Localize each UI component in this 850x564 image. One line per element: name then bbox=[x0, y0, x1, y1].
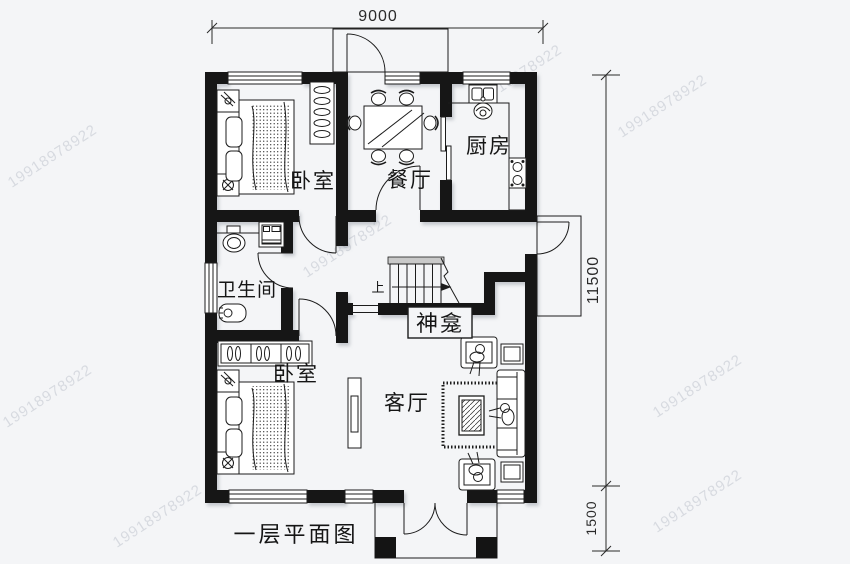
dining-chair bbox=[399, 91, 414, 106]
dining-table bbox=[364, 106, 424, 149]
window bbox=[228, 72, 302, 84]
window bbox=[497, 490, 524, 503]
interior-wall bbox=[495, 272, 537, 282]
bedroom-bottom-furniture bbox=[217, 341, 312, 474]
watermark-text: 19918978922 bbox=[650, 351, 745, 421]
interior-wall bbox=[205, 210, 299, 222]
living-label: 客厅 bbox=[384, 392, 430, 415]
interior-wall bbox=[336, 84, 348, 246]
washing-machine bbox=[259, 222, 284, 247]
door-bedroom-bottom bbox=[299, 299, 336, 336]
tv-cabinet bbox=[348, 378, 361, 448]
interior-wall bbox=[440, 84, 452, 117]
watermark-text: 19918978922 bbox=[615, 71, 710, 141]
kitchen-sink bbox=[469, 85, 497, 103]
bathroom-label: 卫生间 bbox=[217, 279, 277, 301]
porch-column bbox=[375, 537, 396, 558]
exterior-wall bbox=[420, 72, 463, 84]
exterior-wall bbox=[205, 72, 217, 263]
door-side-entry bbox=[537, 222, 569, 254]
wardrobe bbox=[310, 82, 334, 144]
interior-wall bbox=[420, 210, 537, 222]
interior-wall bbox=[336, 303, 353, 315]
window bbox=[205, 263, 217, 313]
stair-landing-edge bbox=[388, 257, 444, 264]
drawing-title: 一层平面图 bbox=[233, 522, 358, 547]
porch-column bbox=[476, 537, 497, 558]
nightstand-lamp bbox=[217, 90, 239, 112]
stairs bbox=[388, 257, 459, 303]
stove bbox=[509, 158, 526, 188]
interior-wall bbox=[440, 180, 452, 222]
interior-wall bbox=[348, 210, 376, 222]
floor-plan-drawing: 19918978922 19918978922 19918978922 1991… bbox=[0, 0, 850, 564]
watermark-text: 19918978922 bbox=[650, 466, 745, 536]
interior-wall bbox=[336, 292, 348, 343]
floor-plan-page: 19918978922 19918978922 19918978922 1991… bbox=[0, 0, 850, 564]
dining-chair bbox=[424, 116, 438, 130]
exterior-wall bbox=[525, 254, 537, 503]
dining-chair bbox=[371, 150, 386, 165]
window bbox=[463, 72, 510, 84]
interior-wall bbox=[484, 272, 495, 315]
armchair bbox=[459, 452, 495, 490]
bathroom-furniture bbox=[217, 222, 284, 322]
shrine-label: 神龛 bbox=[416, 311, 464, 336]
dining-chair bbox=[371, 91, 386, 106]
exterior-wall bbox=[307, 490, 345, 503]
bedroom-top-label: 卧室 bbox=[290, 170, 336, 193]
interior-wall bbox=[281, 288, 293, 330]
side-table bbox=[501, 462, 523, 482]
dimension-porch-value: 1500 bbox=[583, 500, 599, 535]
watermark-text: 19918978922 bbox=[5, 121, 100, 191]
kitchen-stool bbox=[474, 103, 492, 119]
coffee-table bbox=[459, 396, 484, 435]
exterior-wall bbox=[524, 490, 537, 503]
watermark-text: 19918978922 bbox=[110, 481, 205, 551]
window bbox=[385, 72, 420, 84]
side-table bbox=[501, 344, 523, 364]
exterior-wall bbox=[205, 490, 229, 503]
armchair bbox=[461, 337, 497, 376]
wash-basin bbox=[219, 304, 246, 322]
kitchen-label: 厨房 bbox=[466, 135, 512, 158]
door-kitchen-sliding bbox=[441, 117, 451, 180]
bedroom-bottom-label: 卧室 bbox=[273, 363, 319, 386]
dining-label: 餐厅 bbox=[387, 169, 433, 192]
nightstand-lamp bbox=[217, 370, 239, 392]
stairs-up-label: 上 bbox=[371, 280, 384, 295]
dimension-top-value: 9000 bbox=[358, 8, 398, 25]
top-porch-outline bbox=[333, 29, 448, 72]
dining-chair bbox=[347, 116, 361, 130]
dining-chair bbox=[399, 150, 414, 165]
side-landing-outline bbox=[537, 216, 581, 316]
exterior-wall bbox=[373, 490, 404, 503]
sofa bbox=[489, 370, 525, 457]
toilet bbox=[223, 226, 245, 252]
shrine-box: 神龛 bbox=[408, 307, 472, 338]
window bbox=[229, 490, 307, 503]
watermark-text: 19918978922 bbox=[0, 361, 95, 431]
stair-break-line bbox=[441, 258, 459, 303]
dining-furniture bbox=[347, 91, 438, 165]
living-furniture bbox=[348, 337, 525, 490]
exterior-wall bbox=[467, 490, 497, 503]
door-top-porch bbox=[347, 34, 385, 72]
dimension-right-value: 11500 bbox=[585, 256, 602, 304]
exterior-wall bbox=[525, 72, 537, 222]
cased-opening bbox=[353, 303, 378, 315]
window bbox=[345, 490, 373, 503]
door-main-entry-double bbox=[404, 503, 467, 535]
